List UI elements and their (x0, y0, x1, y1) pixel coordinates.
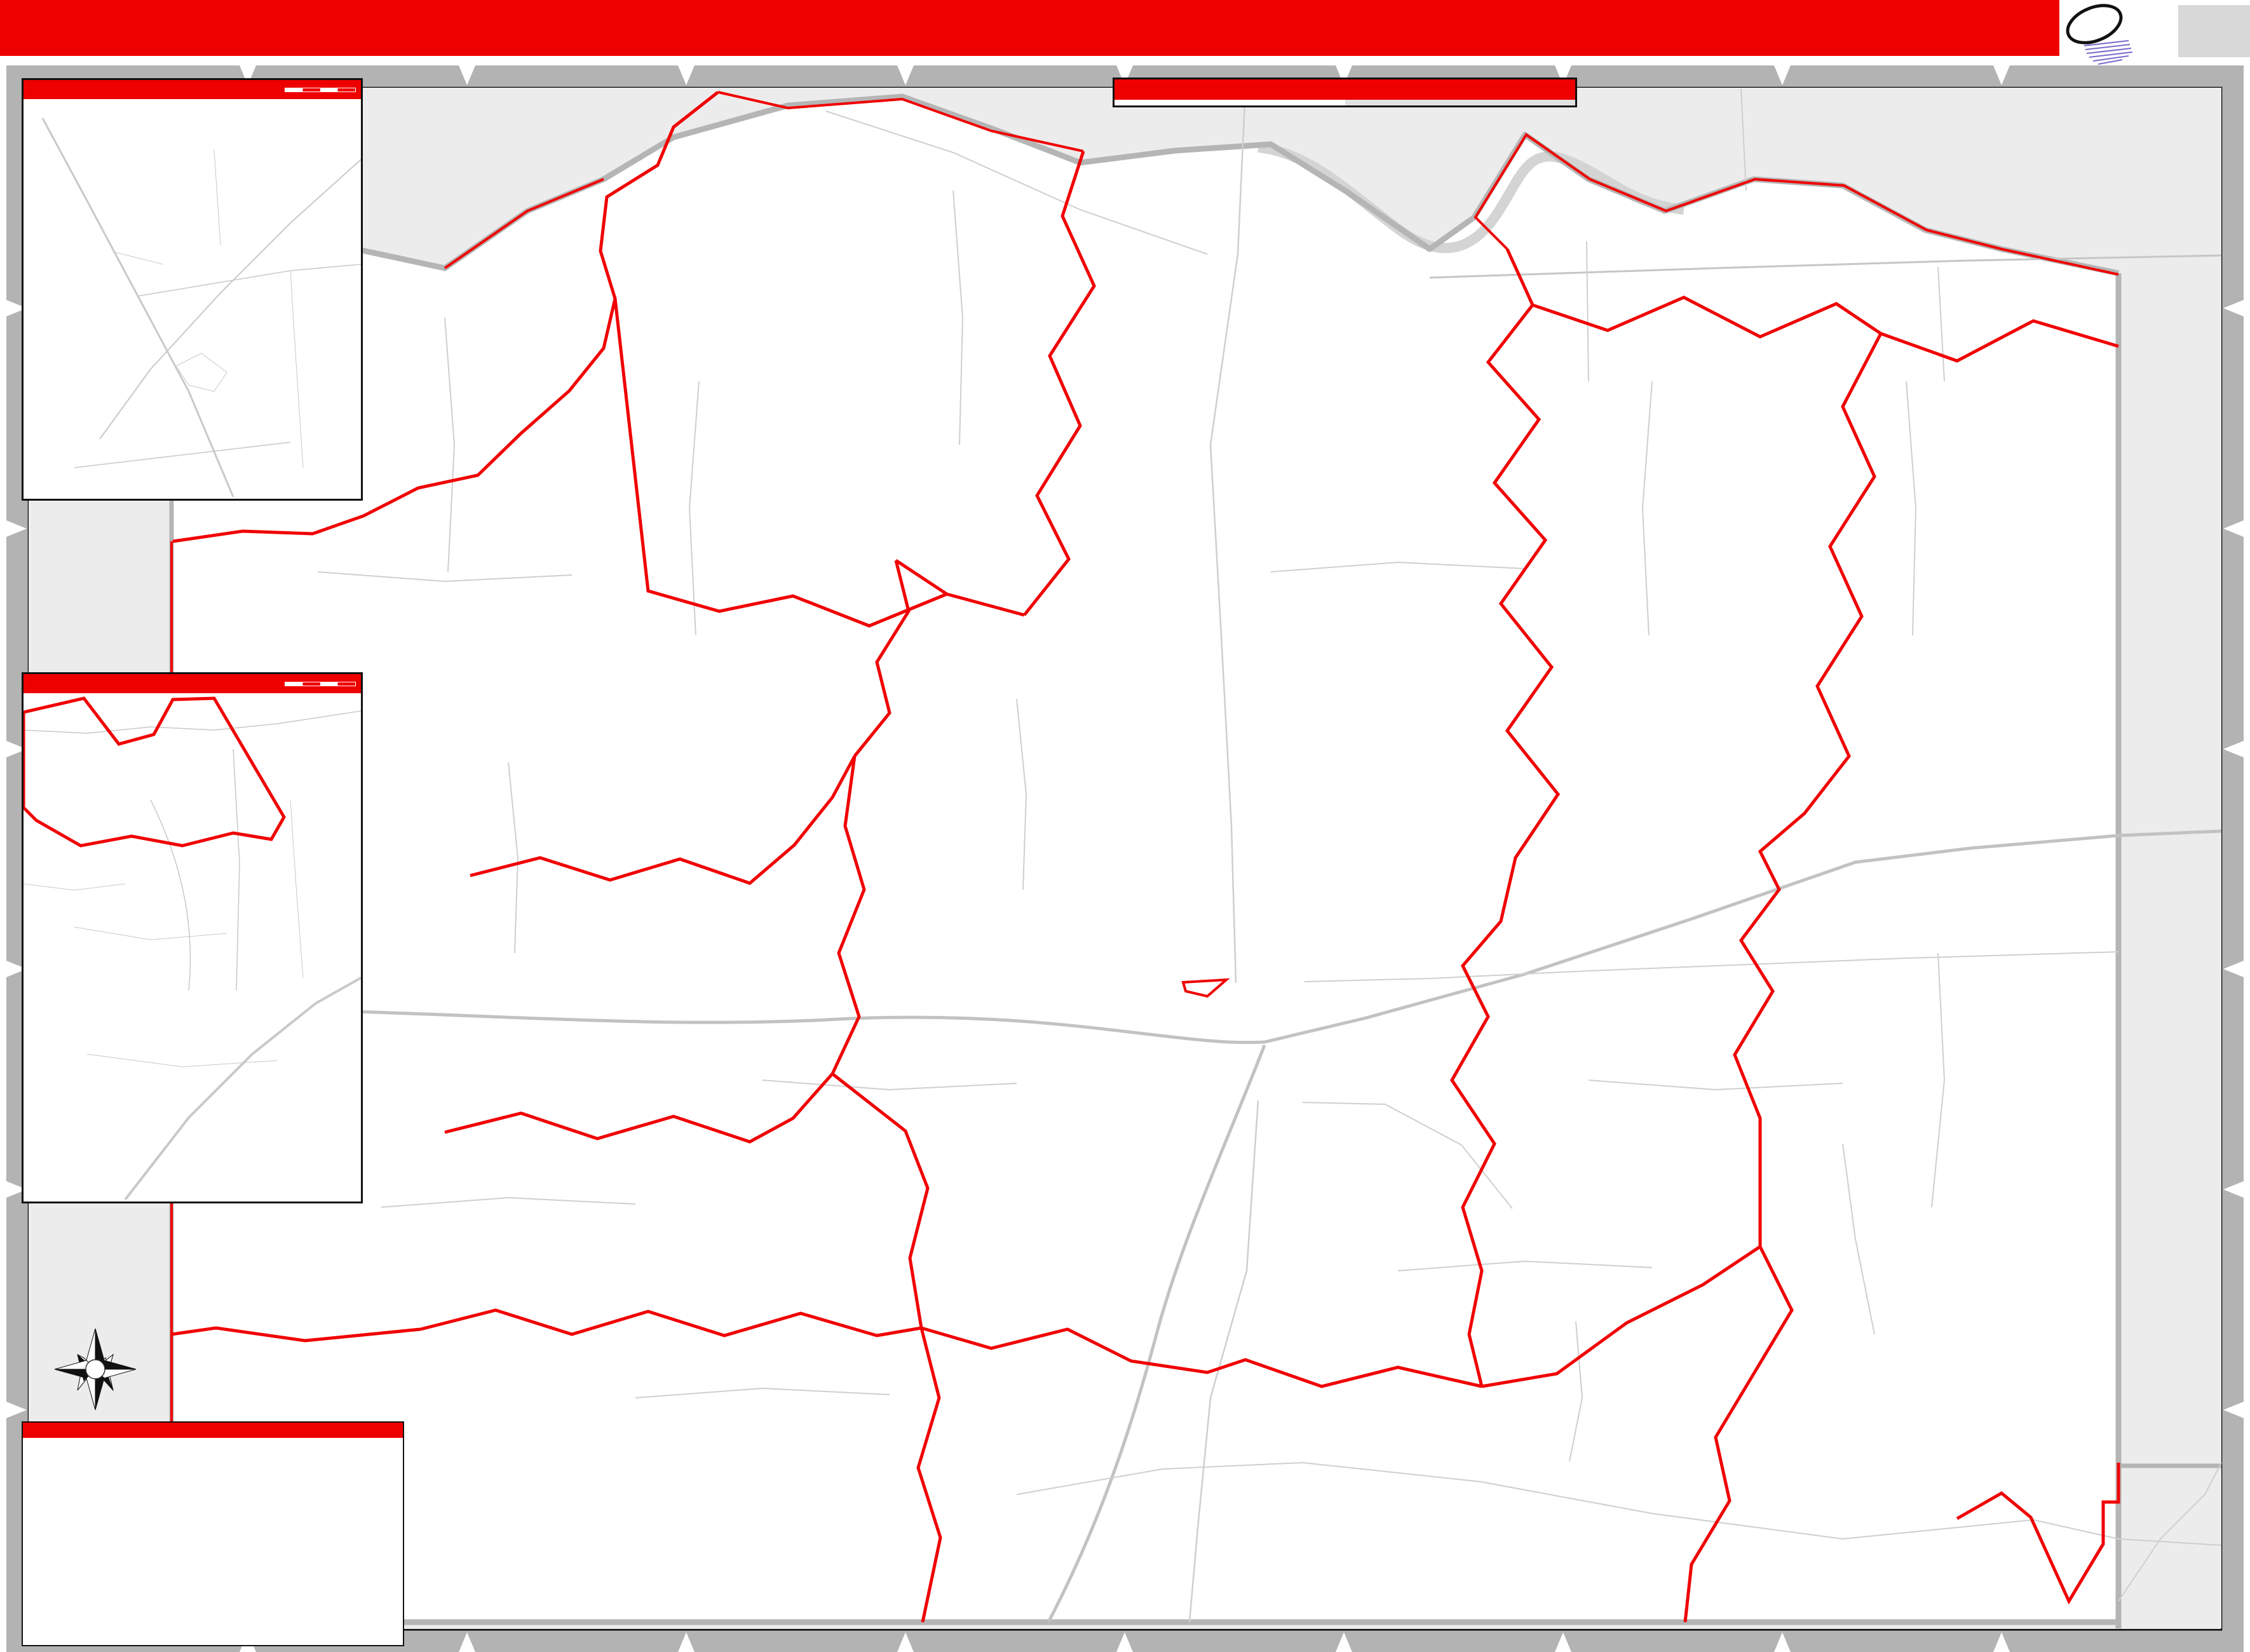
logo-us-scribble (2084, 41, 2132, 64)
logo-graphics (2059, 1, 2186, 78)
overlay-label-layer (0, 0, 2250, 1652)
zip-table-body (1115, 100, 1575, 105)
legend (22, 1421, 404, 1646)
legend-cities (259, 1440, 398, 1443)
zip-table-right-columns (1345, 100, 1576, 105)
zip-table-left-columns (1115, 100, 1345, 105)
zip-table-title (1115, 79, 1575, 100)
zip-code-index-table (1113, 78, 1577, 107)
map-page (0, 0, 2250, 1652)
header-bar (0, 0, 2059, 56)
legend-title (23, 1423, 403, 1438)
marketmaps-logo (2059, 1, 2186, 78)
contact-box (2178, 5, 2250, 57)
